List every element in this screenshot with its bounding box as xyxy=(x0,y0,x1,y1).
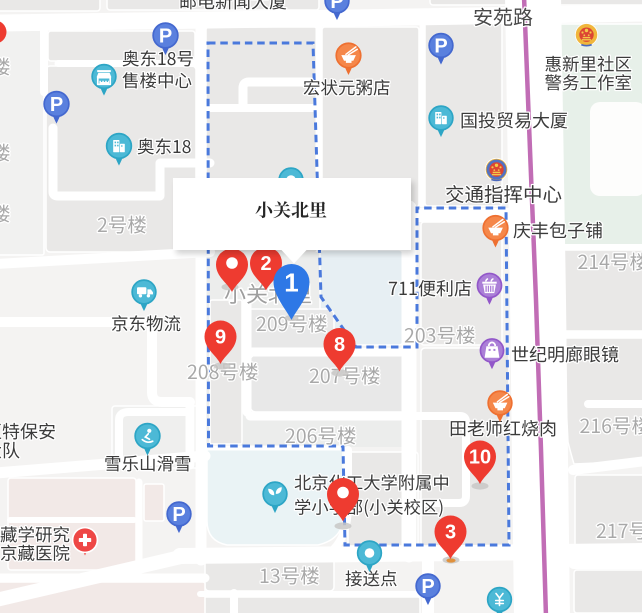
svg-text:P: P xyxy=(330,0,343,13)
svg-text:P: P xyxy=(50,94,63,116)
svg-text:10: 10 xyxy=(469,447,491,469)
svg-text:8: 8 xyxy=(334,334,345,356)
svg-text:9: 9 xyxy=(215,327,226,349)
svg-text:P: P xyxy=(421,576,434,598)
svg-text:P: P xyxy=(434,36,447,58)
svg-text:P: P xyxy=(159,26,172,48)
svg-text:3: 3 xyxy=(445,522,456,544)
svg-text:2: 2 xyxy=(260,253,271,275)
svg-text:1: 1 xyxy=(284,267,298,297)
svg-text:P: P xyxy=(172,504,185,526)
